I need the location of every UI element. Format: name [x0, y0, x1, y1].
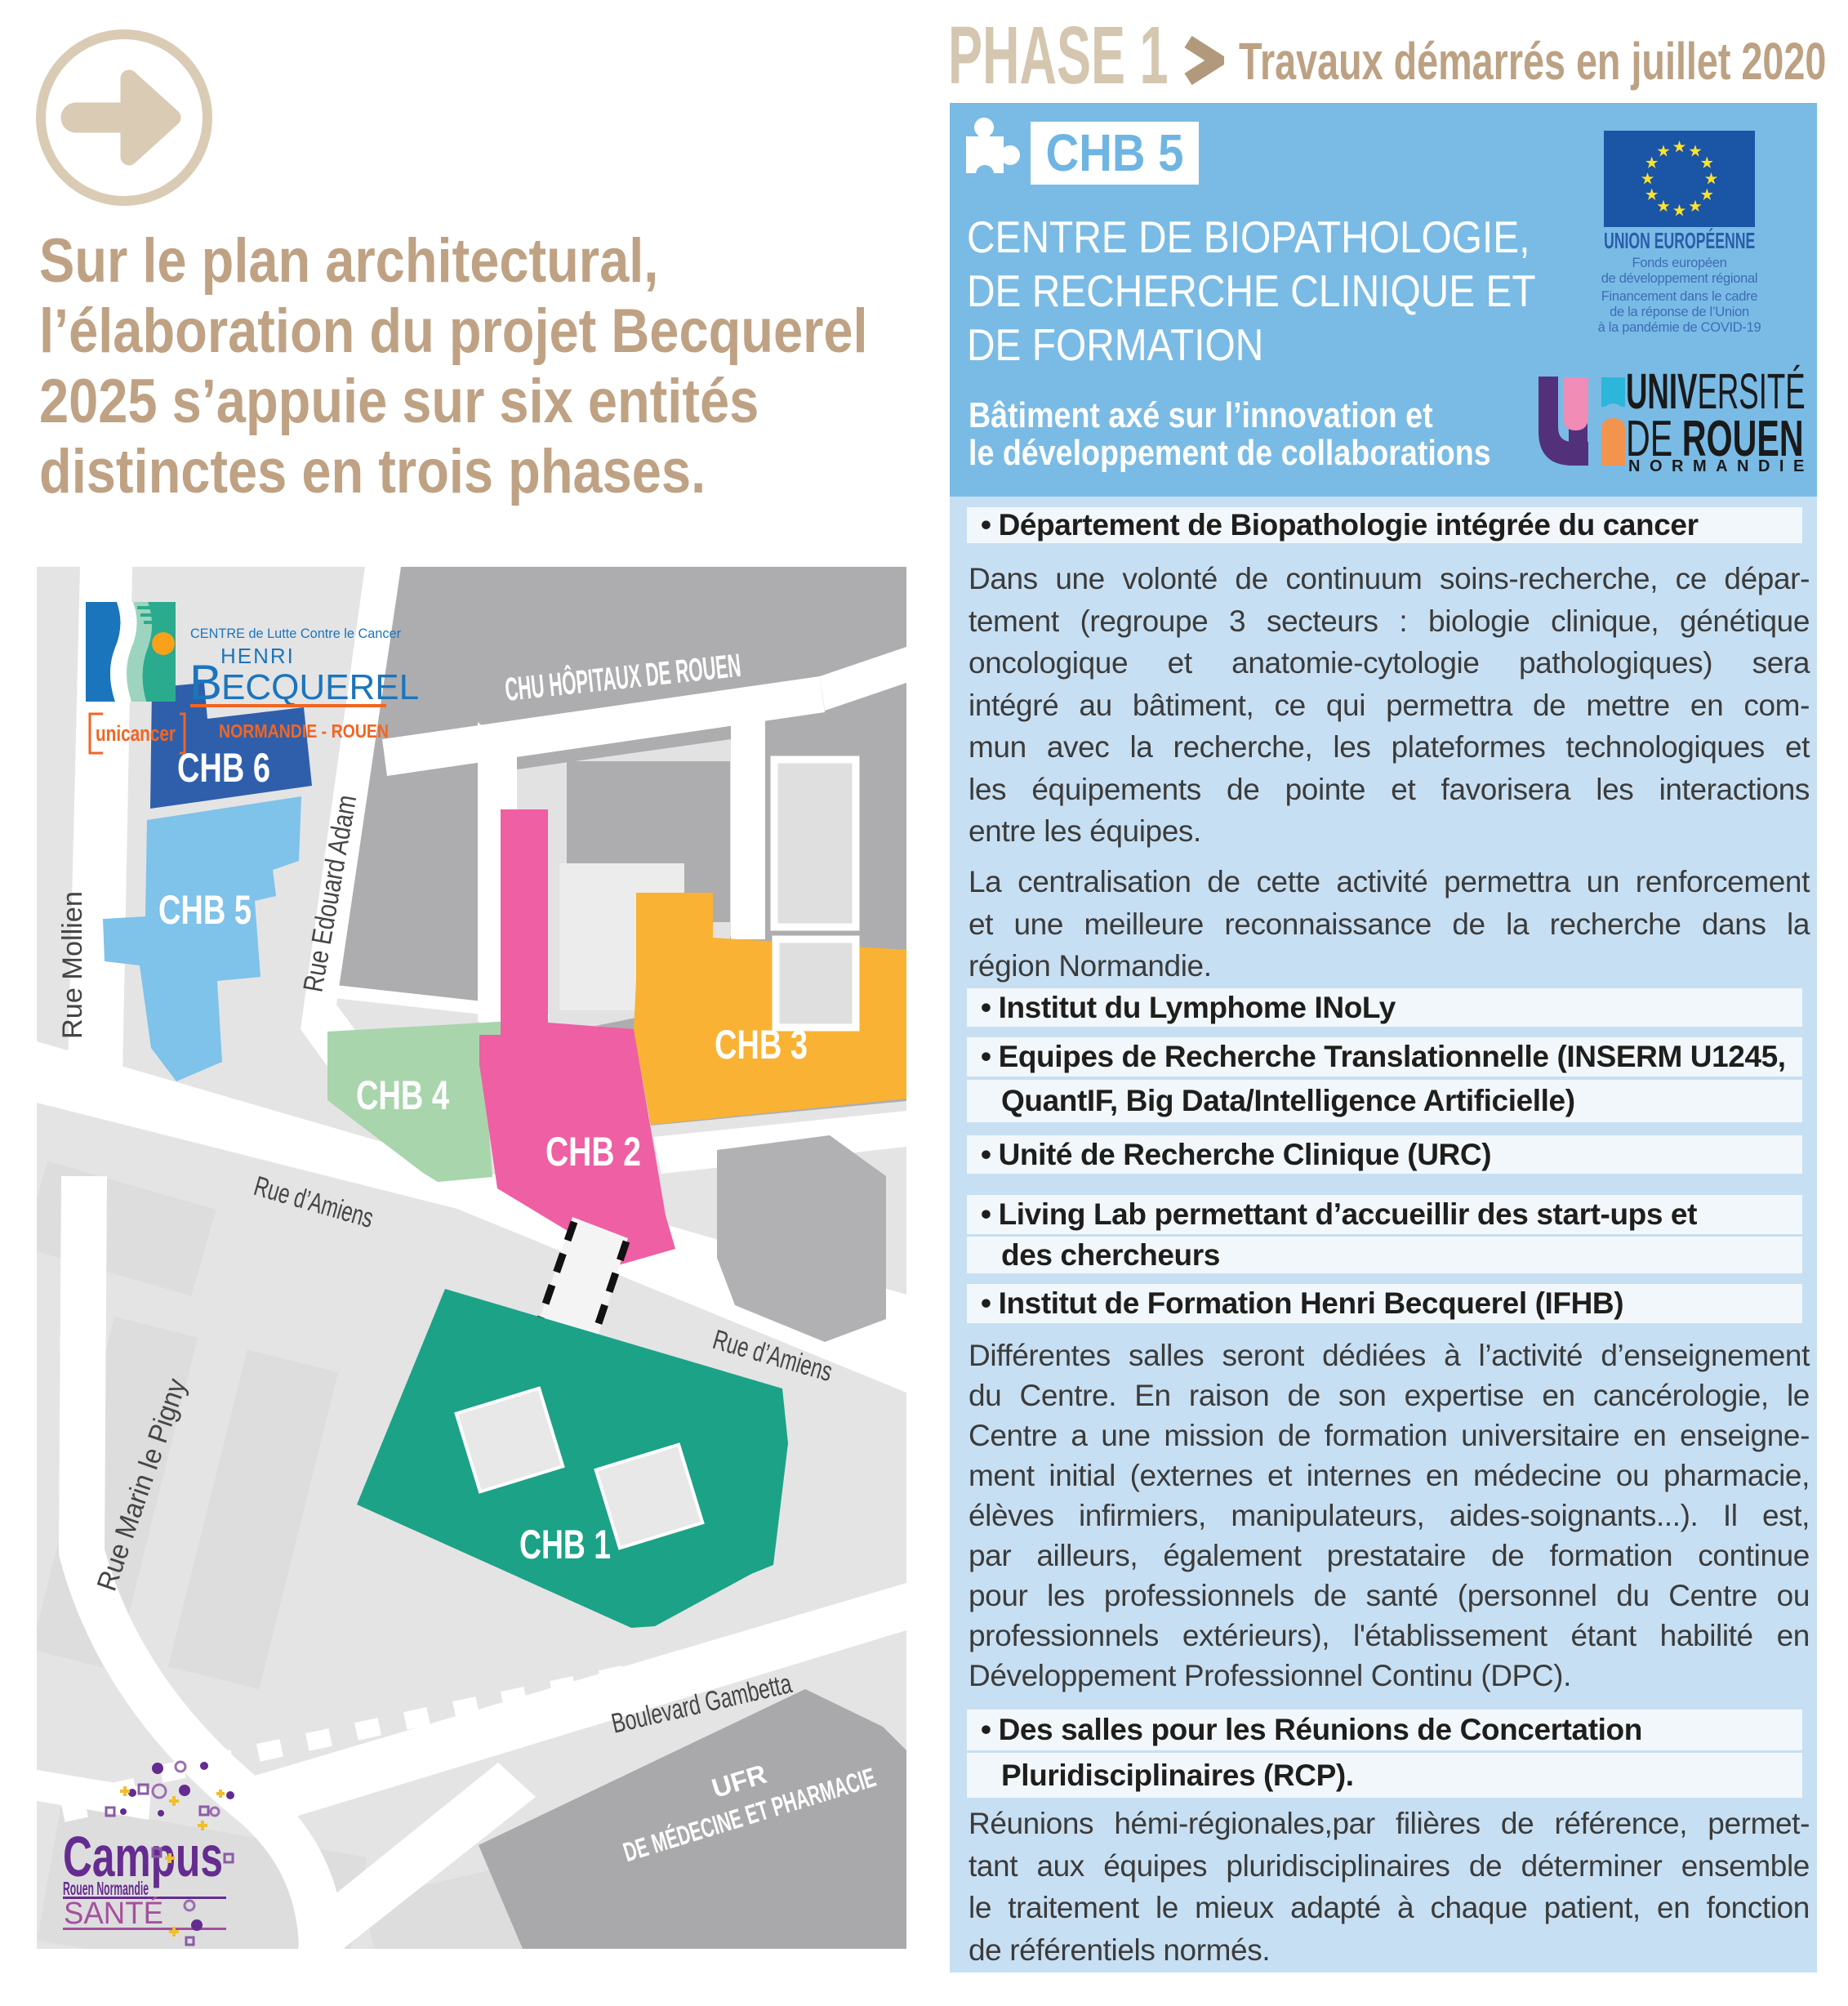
svg-text:CHB 3: CHB 3 — [715, 1022, 808, 1068]
svg-text:HENRI: HENRI — [220, 644, 295, 668]
svg-text:CHB 1: CHB 1 — [519, 1522, 611, 1567]
svg-text:CENTRE de Lutte Contre le Canc: CENTRE de Lutte Contre le Cancer — [190, 626, 401, 641]
svg-text:CHB 5: CHB 5 — [158, 887, 252, 933]
svg-text:ECQUEREL: ECQUEREL — [221, 667, 419, 707]
svg-text:unicancer: unicancer — [96, 721, 176, 746]
svg-text:B: B — [189, 655, 222, 710]
svg-text:NORMANDIE - ROUEN: NORMANDIE - ROUEN — [219, 720, 389, 742]
svg-text:SANTÉ: SANTÉ — [64, 1896, 163, 1931]
svg-text:CHB 6: CHB 6 — [177, 745, 270, 791]
svg-text:Rue Mollien: Rue Mollien — [57, 891, 88, 1039]
svg-text:CHB 2: CHB 2 — [545, 1129, 641, 1175]
svg-text:CHB 4: CHB 4 — [356, 1072, 449, 1118]
